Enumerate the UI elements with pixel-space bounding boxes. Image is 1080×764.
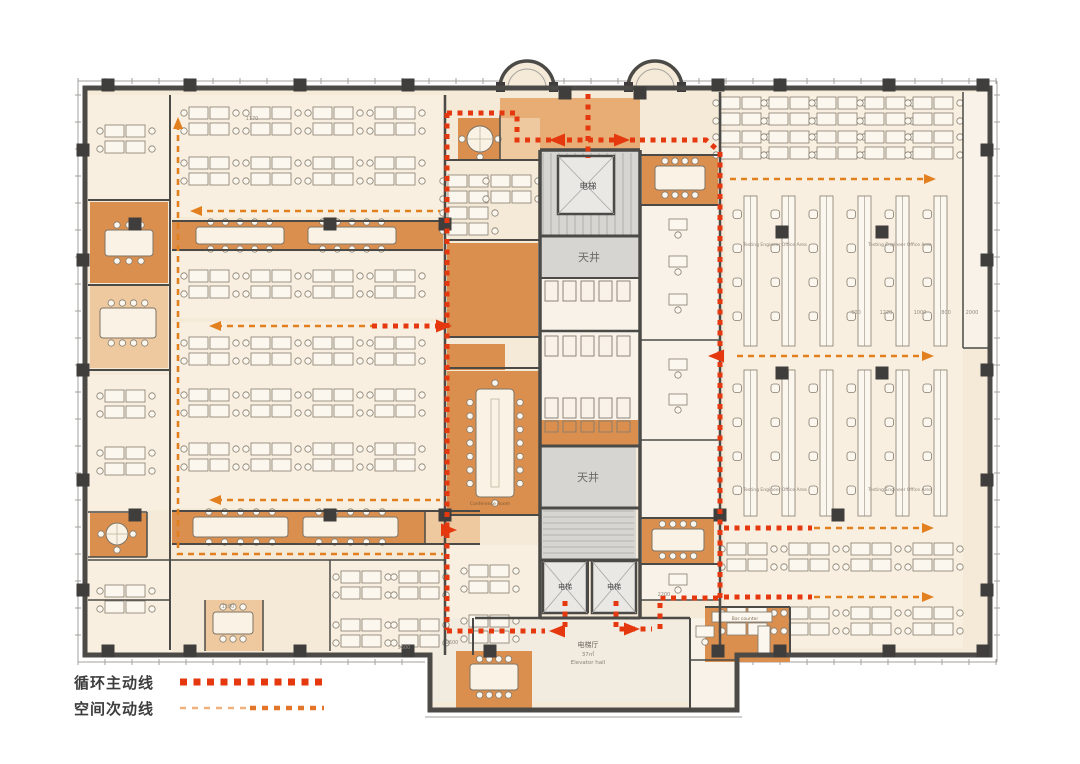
chair <box>662 192 668 198</box>
chair <box>847 486 856 495</box>
desk <box>512 175 531 187</box>
legend-item-secondary-route: 空间次动线 <box>74 697 328 719</box>
chair <box>675 307 681 313</box>
desk <box>341 619 360 631</box>
desk <box>375 107 394 119</box>
dimension-label: 1100 <box>222 604 235 610</box>
desk <box>251 459 270 471</box>
chair <box>419 291 425 297</box>
conference-table <box>476 389 514 497</box>
chair <box>391 640 397 646</box>
desk <box>334 353 353 365</box>
desk <box>189 173 208 185</box>
structural-column <box>184 645 197 658</box>
chair <box>476 656 482 662</box>
desk <box>272 286 291 298</box>
chair <box>505 692 511 698</box>
room-label: Testing Engineer Office Area <box>867 487 932 493</box>
desk <box>448 207 467 219</box>
structural-column <box>977 645 990 658</box>
chair <box>119 340 125 346</box>
chair <box>138 258 144 264</box>
room-label: Testing Engineer Office Area <box>867 242 932 248</box>
primary-route-line-sample <box>176 675 328 689</box>
room-label: Bar counter <box>732 616 759 622</box>
desk <box>669 294 687 305</box>
chair <box>367 178 373 184</box>
desk <box>817 147 836 159</box>
desk <box>251 405 270 417</box>
desk <box>865 97 884 109</box>
chair <box>885 278 894 287</box>
bar-counter <box>758 626 770 654</box>
chair <box>114 547 120 553</box>
structural-column <box>559 87 572 100</box>
chair <box>923 418 932 427</box>
room <box>541 278 638 330</box>
chair <box>680 553 686 559</box>
dimension-label: 3600 <box>398 645 411 651</box>
chair <box>126 258 132 264</box>
desk <box>934 607 953 619</box>
desk <box>313 337 332 349</box>
desk <box>669 256 687 267</box>
chair <box>662 158 668 164</box>
room-label: 电梯 <box>579 181 597 192</box>
structural-column <box>776 226 789 239</box>
chair <box>675 587 681 593</box>
meeting-table <box>193 517 288 537</box>
structural-column <box>883 645 896 658</box>
chair <box>367 392 373 398</box>
room-label: 37㎡ <box>582 650 595 658</box>
chair <box>459 136 465 142</box>
structural-column <box>294 645 307 658</box>
desk <box>334 443 353 455</box>
chair <box>659 553 665 559</box>
chair <box>295 464 301 470</box>
chair <box>391 592 397 598</box>
chair <box>905 610 911 616</box>
chair <box>771 384 780 393</box>
chair <box>483 178 489 184</box>
chair <box>781 610 787 616</box>
chair <box>233 291 239 297</box>
desk <box>126 125 145 137</box>
chair <box>733 452 742 461</box>
chair <box>367 410 373 416</box>
chair <box>957 100 963 106</box>
desk <box>669 359 687 370</box>
desk <box>865 113 884 125</box>
desk <box>865 131 884 143</box>
structural-column <box>77 254 90 267</box>
chair <box>385 640 391 646</box>
desk <box>420 587 439 599</box>
structural-column <box>77 474 90 487</box>
chair <box>367 273 373 279</box>
desk <box>105 125 124 137</box>
chair <box>713 118 719 124</box>
desk <box>375 459 394 471</box>
chair <box>675 269 681 275</box>
structural-column <box>774 79 787 92</box>
desk <box>105 390 124 402</box>
desk <box>189 157 208 169</box>
chair <box>517 453 523 459</box>
chair <box>809 118 815 124</box>
desk <box>742 97 761 109</box>
structural-column <box>102 79 115 92</box>
desk <box>769 97 788 109</box>
chair <box>690 521 696 527</box>
chair <box>733 312 742 321</box>
chair <box>809 152 815 158</box>
chair <box>220 636 226 642</box>
chair <box>505 656 511 662</box>
meeting-table <box>100 308 156 338</box>
chair <box>857 152 863 158</box>
chair <box>305 410 311 416</box>
room-label: 电梯 <box>558 582 572 591</box>
chair <box>243 464 249 470</box>
room-label: Testing Engineer Office Area <box>742 487 807 493</box>
chair <box>885 384 894 393</box>
chair <box>771 628 777 634</box>
desk <box>886 147 905 159</box>
room-label: 电梯厅 <box>578 640 599 649</box>
chair <box>108 300 114 306</box>
chair <box>923 278 932 287</box>
chair <box>142 340 148 346</box>
chair <box>467 399 473 405</box>
chair <box>305 160 311 166</box>
desk <box>341 571 360 583</box>
room <box>447 344 505 370</box>
chair <box>847 452 856 461</box>
chair <box>243 291 249 297</box>
desk <box>251 337 270 349</box>
chair <box>461 568 467 574</box>
desk <box>448 175 467 187</box>
chair <box>486 692 492 698</box>
chair <box>843 628 849 634</box>
chair <box>492 210 498 216</box>
chair <box>367 340 373 346</box>
chair <box>233 410 239 416</box>
chair <box>305 128 311 134</box>
chair <box>733 418 742 427</box>
chair <box>391 574 397 580</box>
chair <box>243 340 249 346</box>
desk <box>934 97 953 109</box>
desk <box>251 123 270 135</box>
desk <box>272 389 291 401</box>
chair <box>367 291 373 297</box>
chair <box>181 291 187 297</box>
chair <box>181 358 187 364</box>
chair <box>957 118 963 124</box>
chair <box>98 531 104 537</box>
chair <box>181 340 187 346</box>
chair <box>243 178 249 184</box>
chair <box>419 160 425 166</box>
desk <box>420 619 439 631</box>
structural-column <box>832 509 845 522</box>
chair <box>895 628 901 634</box>
meeting-table <box>655 166 705 190</box>
chair <box>843 564 849 570</box>
chair <box>305 110 311 116</box>
desk <box>838 131 857 143</box>
chair <box>833 546 839 552</box>
chair <box>181 464 187 470</box>
desk <box>913 131 932 143</box>
chair <box>419 464 425 470</box>
chair <box>761 100 767 106</box>
desk <box>490 565 509 577</box>
chair <box>385 592 391 598</box>
chair <box>496 692 502 698</box>
chair <box>857 100 863 106</box>
desk <box>375 157 394 169</box>
chair <box>847 210 856 219</box>
chair <box>713 134 719 140</box>
desk <box>396 157 415 169</box>
chair <box>957 546 963 552</box>
chair <box>181 392 187 398</box>
desk <box>742 131 761 143</box>
chair <box>243 446 249 452</box>
chair <box>419 392 425 398</box>
chair <box>513 586 519 592</box>
desk <box>769 113 788 125</box>
chair <box>847 278 856 287</box>
chair <box>333 592 339 598</box>
chair <box>809 384 818 393</box>
chair <box>357 110 363 116</box>
chair <box>149 606 155 612</box>
chair <box>230 636 236 642</box>
chair <box>295 160 301 166</box>
chair <box>957 152 963 158</box>
structural-column <box>324 509 337 522</box>
desk <box>189 405 208 417</box>
desk <box>251 286 270 298</box>
chair <box>690 553 696 559</box>
desk <box>469 565 488 577</box>
chair <box>809 486 818 495</box>
chair <box>385 574 391 580</box>
desk <box>210 173 229 185</box>
chair <box>957 610 963 616</box>
desk <box>334 286 353 298</box>
structural-column <box>77 144 90 157</box>
desk <box>886 131 905 143</box>
chair <box>295 273 301 279</box>
chair <box>809 100 815 106</box>
desk <box>210 443 229 455</box>
chair <box>181 110 187 116</box>
legend-item-primary-route: 循环主动线 <box>74 671 328 693</box>
meeting-table <box>196 227 284 244</box>
desk <box>769 131 788 143</box>
chair <box>295 392 301 398</box>
desk <box>313 459 332 471</box>
desk <box>126 141 145 153</box>
desk <box>334 123 353 135</box>
chair <box>357 392 363 398</box>
chair <box>923 384 932 393</box>
chair <box>809 312 818 321</box>
desk <box>375 173 394 185</box>
chair <box>761 152 767 158</box>
dimension-label: 1000 <box>914 310 927 316</box>
dimension-label: 1170 <box>246 116 259 122</box>
chair <box>130 340 136 346</box>
chair <box>295 110 301 116</box>
secondary-route-line-sample <box>176 701 328 715</box>
chair <box>333 622 339 628</box>
chair <box>357 291 363 297</box>
legend-label-secondary: 空间次动线 <box>74 698 176 719</box>
desk <box>210 337 229 349</box>
chair <box>957 564 963 570</box>
chair <box>97 450 103 456</box>
desk <box>272 107 291 119</box>
chair <box>419 178 425 184</box>
chair <box>496 656 502 662</box>
chair <box>295 446 301 452</box>
chair <box>771 210 780 219</box>
desk <box>375 353 394 365</box>
desk <box>669 574 687 585</box>
chair <box>905 546 911 552</box>
desk <box>838 113 857 125</box>
chair <box>305 358 311 364</box>
chair <box>149 450 155 456</box>
chair <box>733 486 742 495</box>
desk <box>272 270 291 282</box>
desk <box>313 107 332 119</box>
desk <box>126 447 145 459</box>
desk <box>851 543 870 555</box>
desk <box>313 123 332 135</box>
chair <box>419 128 425 134</box>
chair <box>847 244 856 253</box>
chair <box>149 146 155 152</box>
chair <box>181 446 187 452</box>
desk <box>341 635 360 647</box>
desk <box>491 175 510 187</box>
desk <box>189 389 208 401</box>
structural-column <box>977 79 990 92</box>
chair <box>733 244 742 253</box>
desk <box>126 601 145 613</box>
desk <box>396 353 415 365</box>
chair <box>781 546 787 552</box>
chair <box>97 588 103 594</box>
chair <box>233 340 239 346</box>
dimension-label: 9600 <box>446 640 459 646</box>
desk <box>934 131 953 143</box>
desk <box>696 626 714 637</box>
desk <box>913 97 932 109</box>
chair <box>771 312 780 321</box>
chair <box>905 628 911 634</box>
desk <box>313 173 332 185</box>
desk <box>769 147 788 159</box>
desk <box>189 270 208 282</box>
desk <box>189 286 208 298</box>
chair <box>181 273 187 279</box>
chair <box>923 452 932 461</box>
chair <box>809 210 818 219</box>
meeting-table <box>470 664 518 690</box>
chair <box>419 446 425 452</box>
chair <box>809 134 815 140</box>
chair <box>233 110 239 116</box>
desk <box>789 559 808 571</box>
chair <box>305 392 311 398</box>
room-label: 电梯 <box>607 582 621 591</box>
chair <box>957 134 963 140</box>
desk <box>272 123 291 135</box>
desk <box>375 123 394 135</box>
desk <box>721 113 740 125</box>
chair <box>97 146 103 152</box>
desk <box>396 270 415 282</box>
chair <box>513 636 519 642</box>
desk <box>790 131 809 143</box>
chair <box>847 384 856 393</box>
chair <box>467 480 473 486</box>
chair <box>659 521 665 527</box>
chair <box>461 618 467 624</box>
chair <box>809 418 818 427</box>
chair <box>357 410 363 416</box>
chair <box>305 273 311 279</box>
chair <box>857 118 863 124</box>
chair <box>181 178 187 184</box>
desk <box>105 585 124 597</box>
chair <box>692 158 698 164</box>
meeting-table <box>308 227 396 244</box>
structural-column <box>712 79 725 92</box>
desk <box>210 389 229 401</box>
chair <box>142 300 148 306</box>
desk <box>790 97 809 109</box>
desk <box>210 270 229 282</box>
chair <box>367 358 373 364</box>
chair <box>670 553 676 559</box>
room-label: Testing Engineer Office Area <box>742 242 807 248</box>
desk <box>210 353 229 365</box>
desk <box>272 405 291 417</box>
desk <box>189 123 208 135</box>
chair <box>419 340 425 346</box>
chair <box>957 628 963 634</box>
chair <box>333 640 339 646</box>
desk <box>789 623 808 635</box>
chair <box>733 278 742 287</box>
structural-column <box>129 218 142 231</box>
desk <box>210 123 229 135</box>
structural-column <box>484 645 497 658</box>
structural-column <box>634 87 647 100</box>
desk <box>396 173 415 185</box>
desk <box>448 191 467 203</box>
